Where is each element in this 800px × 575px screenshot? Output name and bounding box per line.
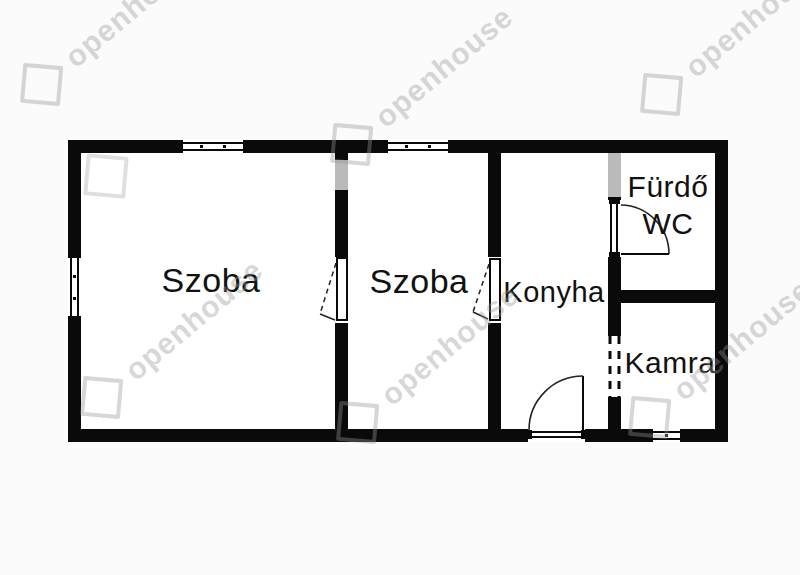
outer-wall-top-segment-2 <box>248 140 383 153</box>
outer-wall-top-segment-3 <box>453 140 728 153</box>
diamond-logo-icon <box>640 73 683 116</box>
room-label-szoba-1: Szoba <box>111 261 311 300</box>
room-label-furdo-wc: Fürdő WC <box>611 168 725 242</box>
outer-wall-left-segment-2 <box>68 321 81 442</box>
window-symbol-szoba1-left <box>68 253 81 321</box>
outer-wall-left-segment-1 <box>68 140 81 253</box>
watermark: openhouse <box>13 0 211 113</box>
watermark-text: openhouse <box>678 0 800 84</box>
outer-wall-top-segment-1 <box>68 140 178 153</box>
room-label-furdo-line1: Fürdő <box>611 168 725 205</box>
interior-wall-szoba2-konyha-bottom <box>488 323 501 429</box>
watermark-text: openhouse <box>368 0 519 134</box>
window-symbol-szoba2-top <box>383 140 453 153</box>
watermark-text: openhouse <box>58 0 209 74</box>
room-label-furdo-line2: WC <box>611 205 725 242</box>
room-label-konyha: Konyha <box>454 276 654 309</box>
interior-wall-konyha-kamra-bottom <box>608 397 621 429</box>
watermark-smudge <box>335 160 348 190</box>
outer-wall-bottom-segment-1 <box>68 429 528 442</box>
door-frame-konyha-entry <box>528 429 585 442</box>
room-label-kamra: Kamra <box>611 346 729 380</box>
interior-wall-szoba2-konyha-top <box>488 153 501 257</box>
outer-wall-bottom-segment-2 <box>585 429 648 442</box>
diamond-logo-icon <box>20 63 63 106</box>
interior-wall-szoba1-szoba2-bottom <box>335 323 348 429</box>
window-symbol-szoba1-top <box>178 140 248 153</box>
watermark: openhouse <box>633 0 800 123</box>
window-symbol-kamra-bottom <box>648 429 685 442</box>
